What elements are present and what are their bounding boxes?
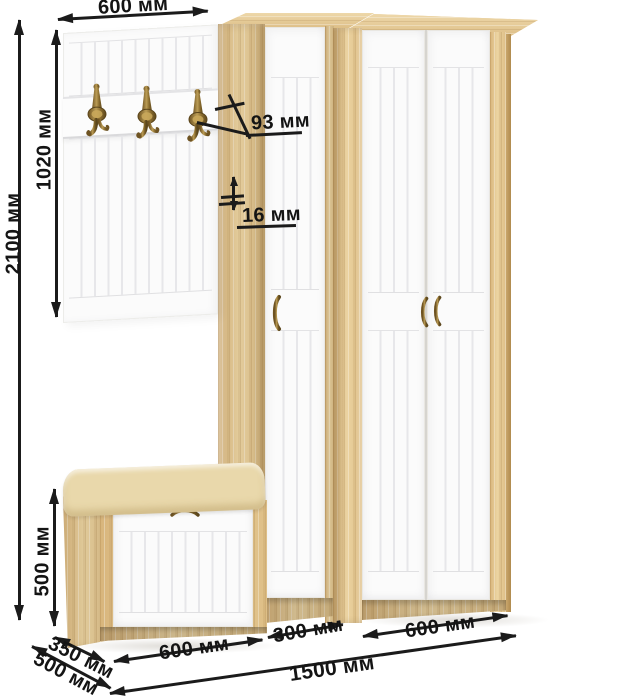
callout-16-arrow <box>232 177 235 210</box>
door-handle-icon <box>432 295 442 327</box>
bench-front <box>100 500 267 627</box>
coat-hook-icon <box>84 83 110 139</box>
door-planks <box>119 531 247 613</box>
wide-wardrobe-door-left <box>362 30 425 600</box>
coat-hook <box>134 85 160 146</box>
coat-hook-icon <box>185 88 211 144</box>
dim-total-height-line <box>18 20 21 620</box>
callout-16-label: 16 мм <box>242 203 302 228</box>
wide-wardrobe-doors <box>362 30 490 600</box>
dim-panel-height-label: 1020 мм <box>34 108 57 192</box>
door-planks <box>271 77 319 290</box>
door-planks <box>368 330 419 572</box>
dim-total-height-label: 2100 мм <box>3 192 26 276</box>
coat-hook <box>185 88 211 149</box>
furniture-dimension-diagram: 600 мм 2100 мм 1020 мм 500 мм 350 мм 500… <box>0 0 630 700</box>
coat-hook-panel <box>63 24 218 323</box>
coat-hook <box>84 83 110 144</box>
dim-panel-width-label: 600 мм <box>97 0 164 20</box>
dim-bench-height-label: 500 мм <box>32 527 55 597</box>
wide-wardrobe-side-edge <box>506 34 511 612</box>
door-handle-icon <box>271 294 282 332</box>
door-planks <box>368 67 419 293</box>
dim-total-width-label: 1500 мм <box>288 651 377 687</box>
door-planks <box>271 330 319 572</box>
coat-hook-icon <box>134 85 160 141</box>
door-planks <box>433 330 484 572</box>
callout-93-label: 93 мм <box>250 109 310 135</box>
panel-planks <box>69 131 212 299</box>
door-planks <box>433 67 484 293</box>
wide-wardrobe-left-stile <box>333 28 362 623</box>
bench-flap-door <box>113 505 253 627</box>
door-handle-icon <box>419 296 429 328</box>
wide-wardrobe-right-stile <box>490 32 506 612</box>
bench-cushion <box>62 462 266 517</box>
